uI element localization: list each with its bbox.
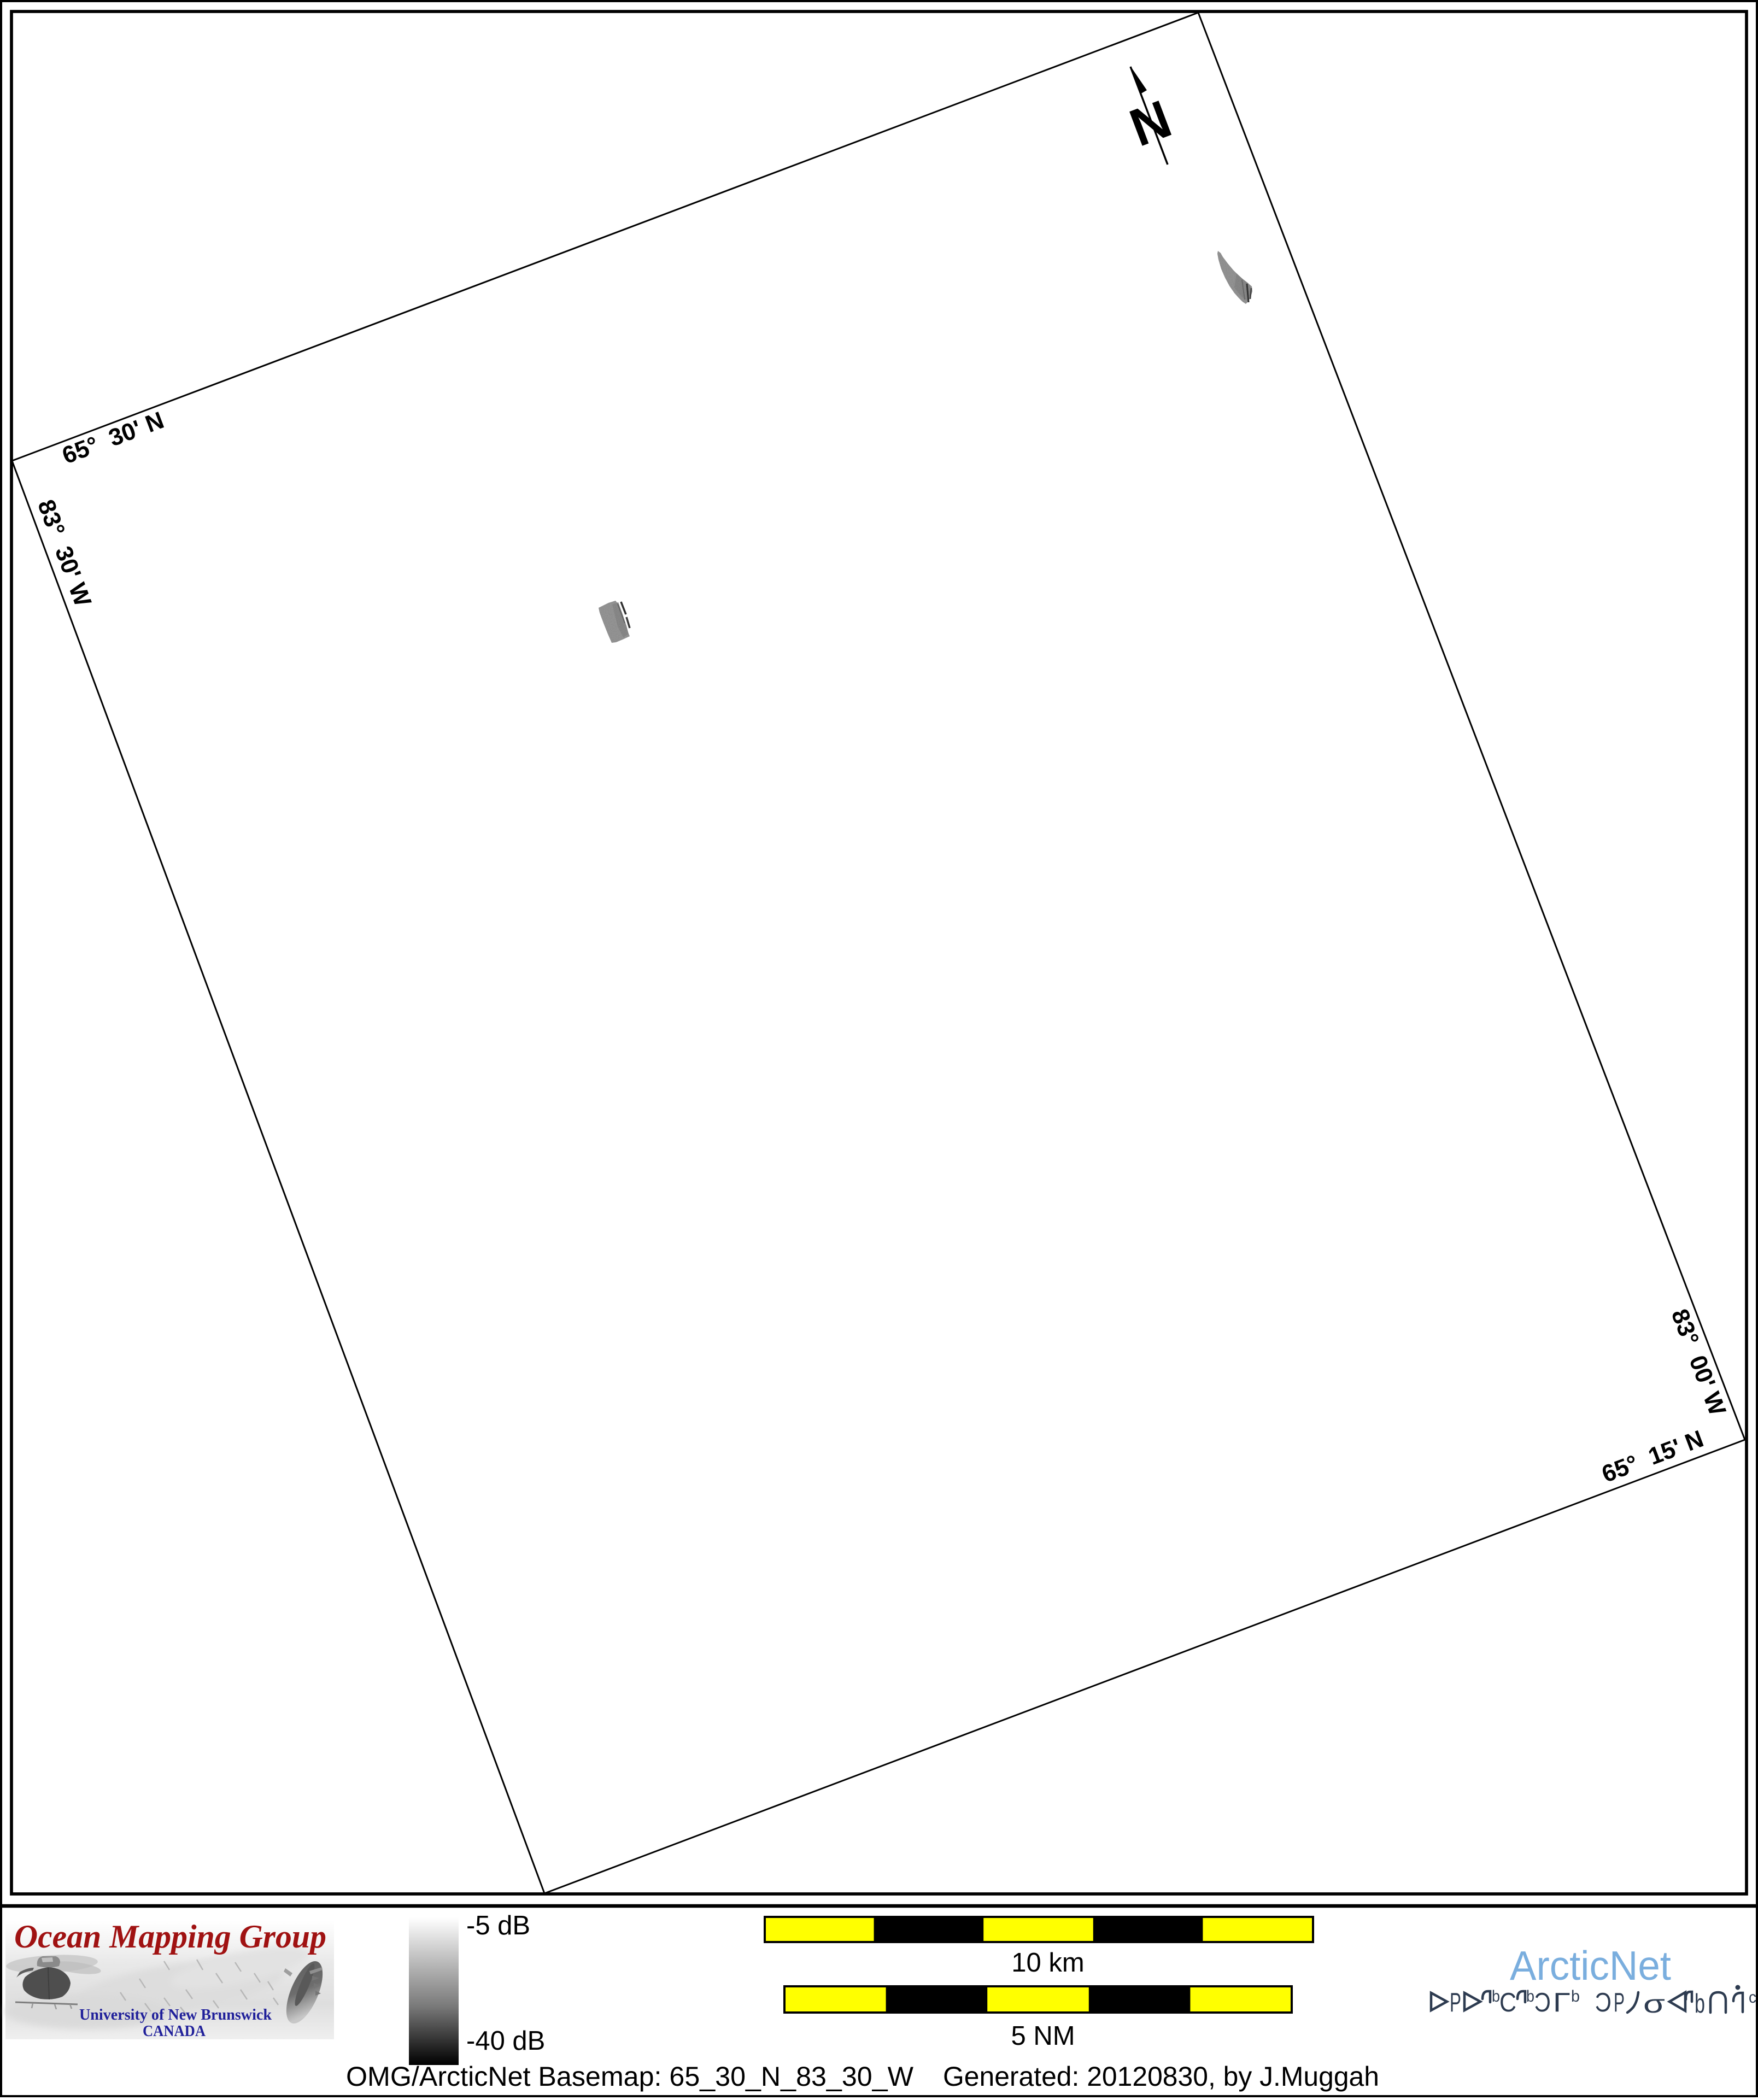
svg-text:b: b: [1492, 1987, 1500, 2005]
svg-text:5 NM: 5 NM: [1011, 2021, 1075, 2051]
svg-text:C: C: [1595, 1988, 1612, 2017]
svg-text:σ: σ: [1643, 1990, 1665, 2018]
svg-text:10 km: 10 km: [1011, 1948, 1084, 1978]
svg-text:University of New Brunswick: University of New Brunswick: [79, 2006, 272, 2023]
svg-text:C: C: [1534, 1988, 1551, 2017]
svg-text:Ocean Mapping Group: Ocean Mapping Group: [14, 1919, 326, 1955]
svg-text:b: b: [1526, 1987, 1534, 2005]
svg-text:Γ: Γ: [1553, 1988, 1571, 2017]
svg-text:c: c: [1749, 1988, 1756, 2007]
svg-text:P: P: [1614, 1988, 1625, 2017]
svg-text:P: P: [1450, 1988, 1461, 2017]
svg-text:ArcticNet: ArcticNet: [1510, 1943, 1671, 1988]
svg-text:-40 dB: -40 dB: [466, 2026, 545, 2056]
svg-text:b: b: [1571, 1987, 1580, 2005]
svg-text:CANADA: CANADA: [143, 2023, 206, 2040]
svg-text:b: b: [1695, 1989, 1705, 2019]
svg-text:Generated: 20120830, by J.Mugg: Generated: 20120830, by J.Muggah: [943, 2061, 1379, 2092]
svg-text:OMG/ArcticNet Basemap: 65_30_N: OMG/ArcticNet Basemap: 65_30_N_83_30_W: [346, 2061, 914, 2092]
svg-text:C: C: [1499, 1988, 1516, 2017]
svg-text:-5 dB: -5 dB: [466, 1911, 530, 1940]
